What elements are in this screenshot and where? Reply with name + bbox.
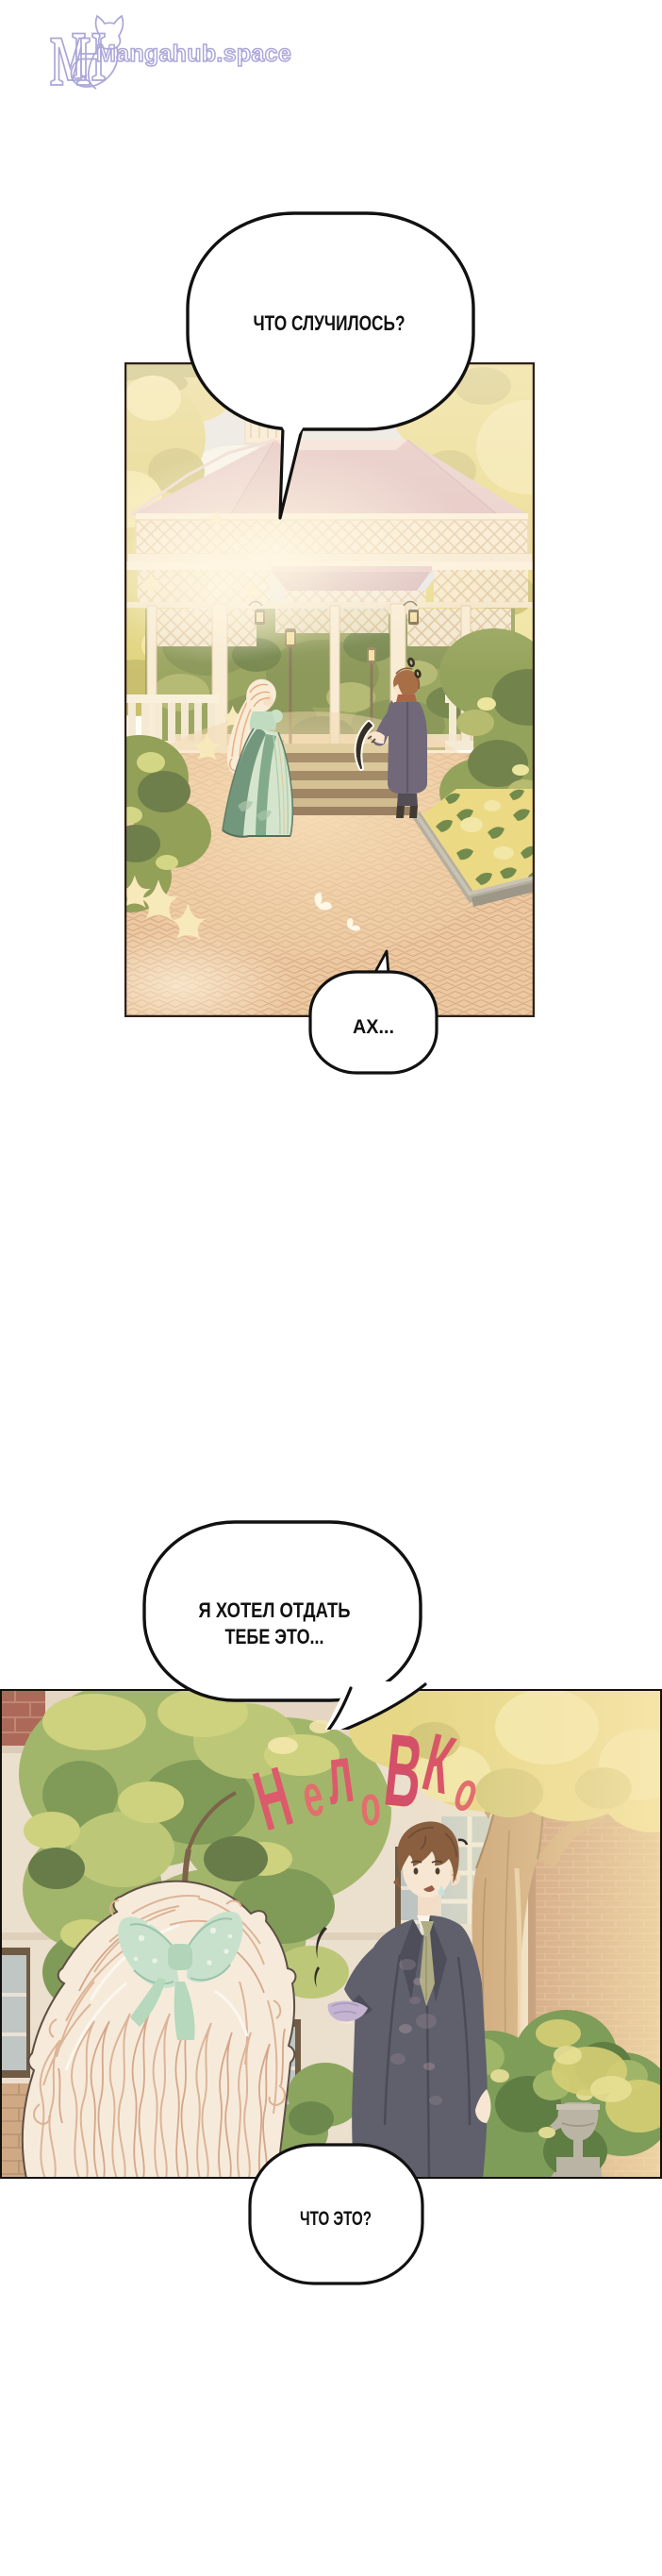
svg-text:ЧТО ЭТО?: ЧТО ЭТО? [300,2208,372,2230]
svg-text:В: В [379,1715,427,1831]
svg-text:ТЕБЕ ЭТО...: ТЕБЕ ЭТО... [225,1625,324,1648]
svg-text:АХ...: АХ... [353,1016,394,1038]
svg-text:Н: Н [245,1749,302,1849]
svg-text:Я ХОТЕЛ ОТДАТЬ: Я ХОТЕЛ ОТДАТЬ [199,1598,351,1622]
svg-text:е: е [296,1761,329,1831]
svg-text:ЧТО СЛУЧИЛОСЬ?: ЧТО СЛУЧИЛОСЬ? [254,311,405,335]
svg-text:о: о [358,1772,382,1838]
svg-text:о: о [446,1758,488,1826]
svg-text:л: л [320,1728,358,1822]
